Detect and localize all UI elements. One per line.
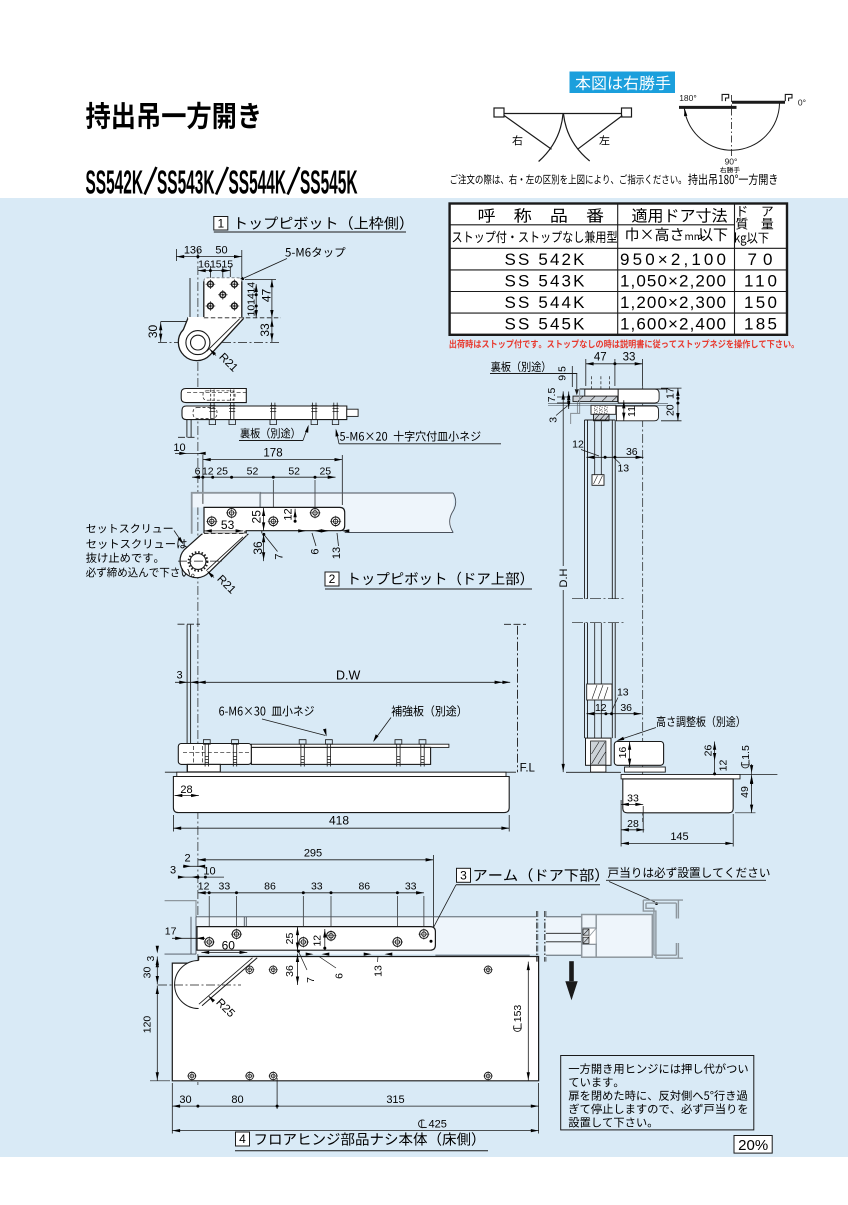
svg-text:10: 10	[173, 442, 185, 454]
svg-text:25: 25	[249, 510, 263, 524]
svg-text:1,200×2,300: 1,200×2,300	[620, 293, 726, 312]
svg-text:90°: 90°	[725, 157, 738, 167]
svg-text:SS545K: SS545K	[300, 165, 358, 202]
svg-text:SS544K: SS544K	[229, 165, 287, 202]
svg-text:185: 185	[744, 315, 777, 334]
svg-text:16: 16	[198, 258, 210, 270]
svg-text:7: 7	[274, 553, 286, 559]
svg-text:53: 53	[221, 518, 235, 532]
svg-text:7.5: 7.5	[546, 388, 558, 403]
svg-text:25: 25	[319, 465, 331, 477]
svg-text:7: 7	[305, 977, 317, 983]
svg-text:153: 153	[512, 1005, 524, 1023]
svg-text:12: 12	[717, 760, 729, 772]
svg-text:110: 110	[744, 272, 777, 291]
svg-text:10: 10	[203, 865, 215, 877]
svg-text:295: 295	[304, 848, 322, 860]
svg-text:47: 47	[259, 289, 273, 303]
svg-text:33: 33	[405, 881, 417, 893]
svg-text:30: 30	[146, 325, 160, 339]
svg-text:15: 15	[221, 258, 233, 270]
svg-text:6: 6	[310, 548, 322, 554]
svg-text:4: 4	[239, 1132, 246, 1146]
svg-text:1.5: 1.5	[740, 745, 752, 760]
svg-text:1,050×2,200: 1,050×2,200	[620, 272, 726, 291]
svg-text:52: 52	[288, 465, 300, 477]
svg-text:20%: 20%	[738, 1137, 768, 1154]
svg-text:150: 150	[744, 293, 777, 312]
svg-text:13: 13	[331, 547, 343, 559]
svg-text:950×2,100: 950×2,100	[620, 250, 726, 269]
svg-text:36: 36	[626, 446, 638, 458]
svg-text:33: 33	[311, 881, 323, 893]
svg-text:11: 11	[626, 406, 638, 417]
svg-text:13: 13	[373, 965, 385, 977]
svg-text:60: 60	[222, 938, 236, 952]
svg-text:16: 16	[617, 747, 629, 759]
svg-text:2: 2	[184, 853, 190, 865]
svg-text:36: 36	[284, 965, 296, 977]
svg-text:12: 12	[202, 465, 214, 477]
svg-text:SS543K: SS543K	[157, 165, 215, 202]
svg-text:2: 2	[329, 572, 336, 586]
svg-text:120: 120	[142, 1016, 154, 1034]
svg-text:26: 26	[702, 745, 714, 757]
svg-text:33: 33	[219, 881, 231, 893]
svg-text:F.L: F.L	[520, 763, 536, 775]
svg-text:9.5: 9.5	[557, 366, 569, 381]
svg-text:36: 36	[251, 541, 265, 555]
svg-text:47: 47	[594, 351, 607, 363]
svg-text:17: 17	[165, 926, 177, 938]
svg-text:13: 13	[617, 463, 629, 475]
svg-text:3: 3	[170, 864, 176, 876]
svg-text:178: 178	[263, 448, 282, 460]
svg-text:86: 86	[264, 881, 276, 893]
svg-text:30: 30	[179, 1094, 191, 1106]
svg-text:0°: 0°	[798, 98, 806, 108]
svg-text:12: 12	[572, 438, 584, 450]
svg-text:17: 17	[665, 387, 677, 399]
svg-text:33: 33	[623, 351, 636, 363]
svg-text:12: 12	[311, 935, 323, 947]
svg-text:13: 13	[617, 687, 629, 699]
svg-text:50: 50	[215, 244, 227, 256]
svg-text:86: 86	[358, 881, 370, 893]
svg-text:180°: 180°	[679, 93, 697, 103]
svg-text:418: 418	[329, 814, 349, 828]
svg-text:6: 6	[333, 973, 345, 979]
svg-text:14: 14	[245, 282, 257, 294]
svg-text:425: 425	[429, 1119, 447, 1131]
svg-text:25: 25	[216, 465, 228, 477]
svg-text:52: 52	[247, 465, 259, 477]
svg-text:D.W: D.W	[336, 669, 361, 683]
svg-text:36: 36	[620, 702, 632, 714]
svg-text:315: 315	[386, 1094, 404, 1106]
svg-text:12: 12	[283, 508, 295, 520]
svg-text:80: 80	[231, 1094, 243, 1106]
svg-text:3: 3	[176, 670, 182, 682]
svg-text:15: 15	[210, 258, 222, 270]
svg-text:6: 6	[195, 465, 201, 477]
svg-text:SS542K: SS542K	[86, 165, 144, 202]
svg-text:33: 33	[258, 323, 272, 337]
svg-text:1,600×2,400: 1,600×2,400	[620, 315, 726, 334]
svg-text:136: 136	[184, 244, 202, 256]
svg-text:1: 1	[217, 216, 224, 230]
svg-text:20: 20	[665, 404, 677, 416]
svg-text:3: 3	[548, 417, 560, 423]
svg-text:49: 49	[739, 786, 751, 798]
svg-text:14: 14	[245, 293, 257, 305]
svg-text:3: 3	[460, 869, 467, 883]
svg-text:D.H: D.H	[558, 568, 570, 587]
svg-text:28: 28	[180, 784, 192, 796]
svg-text:12: 12	[198, 881, 210, 893]
svg-text:145: 145	[670, 831, 688, 843]
svg-text:30: 30	[142, 967, 154, 979]
svg-text:25: 25	[284, 933, 296, 945]
svg-text:33: 33	[627, 793, 639, 805]
svg-text:28: 28	[627, 818, 639, 830]
svg-text:3: 3	[146, 955, 157, 961]
svg-text:12: 12	[595, 702, 607, 714]
svg-text:10: 10	[245, 305, 257, 317]
